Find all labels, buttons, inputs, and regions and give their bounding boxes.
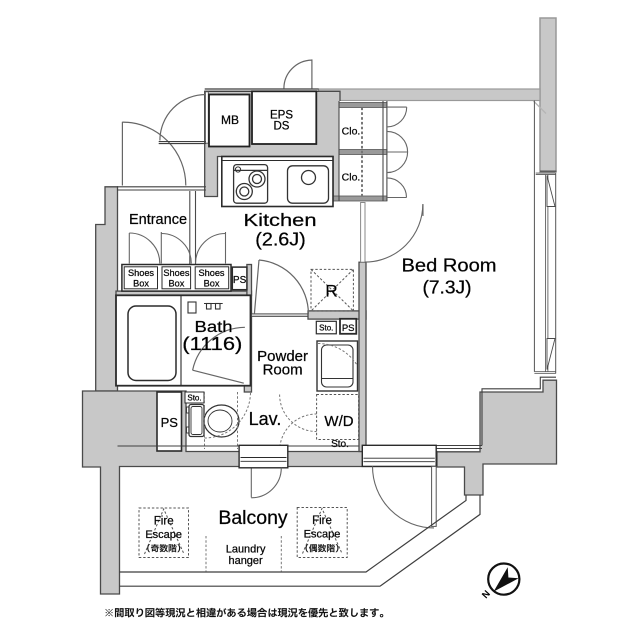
svg-text:R: R [325,282,337,301]
svg-text:Sto.: Sto. [319,324,333,333]
svg-text:DS: DS [274,121,290,133]
svg-text:Sto.: Sto. [187,394,201,403]
svg-text:MB: MB [221,113,239,127]
svg-text:Escape: Escape [145,529,182,541]
svg-text:PS: PS [161,415,179,430]
svg-text:Clo.: Clo. [342,172,361,184]
svg-text:Entrance: Entrance [129,212,187,228]
svg-text:Box: Box [168,278,184,288]
svg-text:Shoes: Shoes [163,268,189,278]
svg-text:Fire: Fire [312,515,332,527]
svg-text:(7.3J): (7.3J) [423,277,472,298]
svg-text:Fire: Fire [154,516,174,528]
svg-text:Shoes: Shoes [198,268,224,278]
svg-text:W/D: W/D [324,413,353,430]
svg-text:Clo.: Clo. [342,126,361,138]
svg-text:Room: Room [263,362,303,379]
svg-text:Shoes: Shoes [128,268,154,278]
svg-text:PS: PS [342,323,355,334]
svg-text:PS: PS [233,275,247,286]
svg-text:hanger: hanger [228,555,263,567]
svg-text:Lav.: Lav. [249,409,282,429]
svg-text:Balcony: Balcony [218,507,288,529]
svg-text:Escape: Escape [304,529,341,541]
svg-text:(1116): (1116) [182,333,242,354]
svg-text:Box: Box [204,278,220,288]
svg-text:Kitchen: Kitchen [244,210,317,230]
svg-text:Box: Box [133,278,149,288]
svg-text:Bed Room: Bed Room [402,255,497,276]
svg-text:Laundry: Laundry [226,544,266,556]
svg-text:Sto.: Sto. [331,439,349,450]
svg-text:(2.6J): (2.6J) [255,229,306,250]
